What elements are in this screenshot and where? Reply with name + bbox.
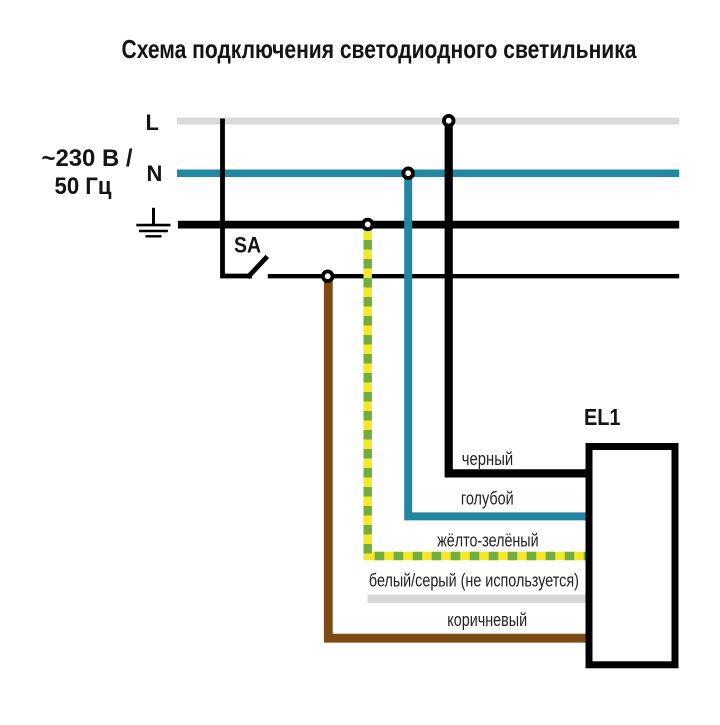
svg-text:черный: черный <box>462 449 513 469</box>
svg-text:Схема подключения светодиодног: Схема подключения светодиодного светильн… <box>122 34 637 64</box>
svg-text:SA: SA <box>234 233 261 258</box>
svg-text:~230 В /: ~230 В / <box>42 145 133 172</box>
svg-text:EL1: EL1 <box>584 404 621 430</box>
svg-text:50 Гц: 50 Гц <box>55 173 112 200</box>
svg-text:жёлто-зелёный: жёлто-зелёный <box>437 530 538 550</box>
svg-text:голубой: голубой <box>461 489 514 509</box>
svg-text:L: L <box>146 110 159 135</box>
svg-text:N: N <box>147 161 163 186</box>
svg-text:коричневый: коричневый <box>447 610 527 630</box>
svg-text:белый/серый (не используется): белый/серый (не используется) <box>369 571 579 591</box>
